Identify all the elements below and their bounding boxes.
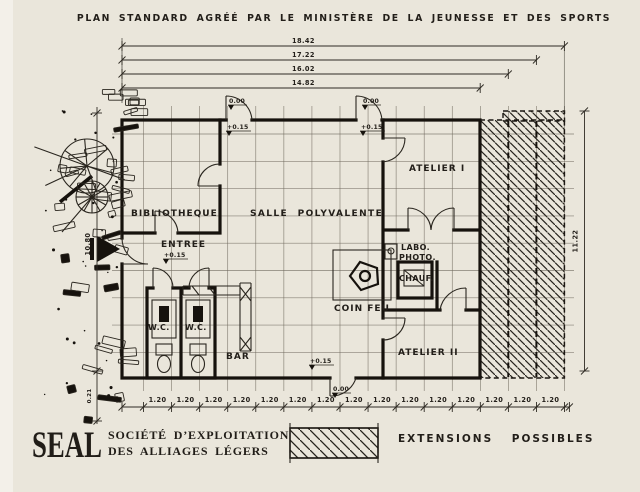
company-line-2: DES ALLIAGES LÉGERS [108, 444, 269, 458]
level-marker: 0.00 [333, 386, 350, 393]
room-label-salle: SALLE POLYVALENTE [250, 209, 383, 219]
level-marker: +0.15 [164, 252, 185, 259]
dim-label: 1.20 [149, 396, 167, 404]
level-marker: 0.00 [229, 98, 246, 105]
dim-label: 1.20 [177, 396, 195, 404]
paper-edge [0, 0, 13, 492]
room-label-coin-feu: COIN FEU [334, 304, 390, 314]
dim-label: 1.20 [317, 396, 335, 404]
dim-label: 10.80 [84, 233, 92, 256]
dim-label: 1.20 [401, 396, 419, 404]
room-label-photo: PHOTO. [399, 253, 436, 262]
dim-label: 1.20 [261, 396, 279, 404]
dim-label: 1.20 [289, 396, 307, 404]
company-line-1: SOCIÉTÉ D’EXPLOITATION [108, 428, 289, 442]
room-label-labo: LABO. [401, 243, 430, 252]
level-marker: +0.15 [361, 124, 382, 131]
room-label-bibliotheque: BIBLIOTHEQUE [131, 209, 218, 219]
legend-hatch-swatch [290, 423, 378, 463]
room-label-wc-left: W.C. [148, 323, 170, 332]
dim-label: 16.02 [292, 65, 315, 73]
logo-seal: SEAL [32, 425, 102, 466]
room-label-bar: BAR [226, 352, 250, 362]
dim-label: 1.20 [429, 396, 447, 404]
dim-label: 1.20 [233, 396, 251, 404]
dim-label: 14.82 [292, 79, 315, 87]
dim-label: 1.20 [373, 396, 391, 404]
dim-label: 1.20 [485, 396, 503, 404]
room-label-atelier1: ATELIER I [409, 164, 465, 174]
floor-plan-canvas: 18.4217.2216.0214.821.201.201.201.201.20… [0, 0, 640, 492]
dim-label: 1.20 [513, 396, 531, 404]
dim-label: 0.21 [87, 389, 93, 404]
dim-label: 17.22 [292, 51, 315, 59]
level-marker: +0.15 [310, 358, 331, 365]
dim-label: 11.22 [572, 230, 580, 253]
scanned-floor-plan: 18.4217.2216.0214.821.201.201.201.201.20… [0, 0, 640, 492]
dim-label: 1.20 [542, 396, 560, 404]
room-label-chauf: CHAUF. [399, 274, 434, 283]
room-label-entree: ENTREE [161, 240, 206, 250]
dim-label: 1.20 [345, 396, 363, 404]
level-marker: +0.15 [227, 124, 248, 131]
room-label-atelier2: ATELIER II [398, 348, 459, 358]
plan-title: PLAN STANDARD AGRÉÉ PAR LE MINISTÈRE DE … [77, 12, 611, 24]
dim-label: 18.42 [292, 37, 315, 45]
legend-extensions-label: EXTENSIONS POSSIBLES [398, 433, 594, 445]
extension-zone [480, 111, 565, 378]
room-label-wc-right: W.C. [185, 323, 207, 332]
level-marker: 0.00 [363, 98, 380, 105]
dim-label: 1.20 [457, 396, 475, 404]
extension-hatch-area [480, 120, 564, 378]
dim-label: 1.20 [205, 396, 223, 404]
